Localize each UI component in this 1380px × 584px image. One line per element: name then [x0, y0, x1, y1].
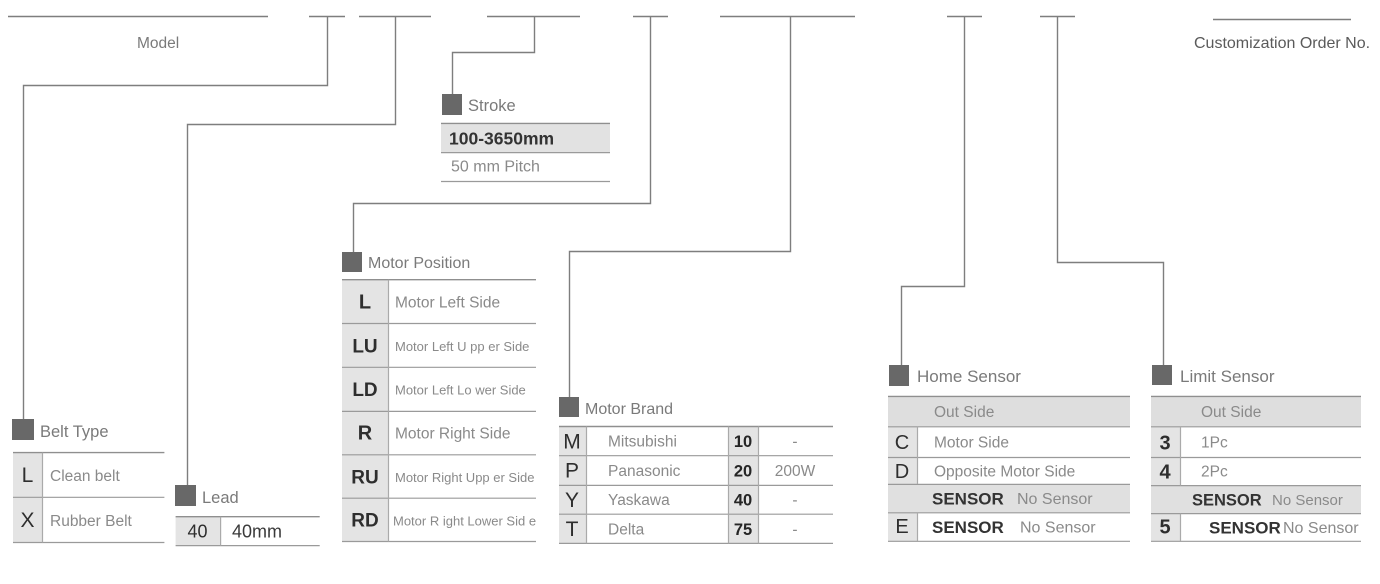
- svg-text:Motor Right Side: Motor Right Side: [395, 426, 510, 443]
- svg-text:D: D: [895, 461, 909, 483]
- svg-text:1Pc: 1Pc: [1201, 435, 1228, 452]
- svg-text:-: -: [792, 521, 797, 538]
- svg-text:50 mm Pitch: 50 mm Pitch: [451, 159, 540, 176]
- svg-text:No Sensor: No Sensor: [1272, 492, 1343, 509]
- svg-text:Rubber Belt: Rubber Belt: [50, 513, 133, 530]
- svg-text:Customization Order No.: Customization Order No.: [1194, 35, 1370, 52]
- svg-text:Model: Model: [137, 35, 179, 52]
- svg-text:40: 40: [187, 522, 207, 542]
- svg-text:Opposite Motor Side: Opposite Motor Side: [934, 464, 1075, 481]
- svg-text:Panasonic: Panasonic: [608, 463, 681, 480]
- svg-text:2Pc: 2Pc: [1201, 464, 1228, 481]
- svg-text:P: P: [565, 460, 579, 483]
- svg-text:RD: RD: [351, 511, 378, 532]
- svg-text:X: X: [20, 509, 34, 532]
- svg-text:Yaskawa: Yaskawa: [608, 492, 670, 509]
- svg-text:Lead: Lead: [202, 489, 239, 507]
- svg-text:40mm: 40mm: [232, 522, 282, 542]
- svg-text:No Sensor: No Sensor: [1020, 520, 1096, 537]
- svg-text:Motor Right Upp er Side: Motor Right Upp er Side: [395, 470, 534, 485]
- svg-text:R: R: [358, 423, 373, 445]
- svg-text:-: -: [792, 434, 797, 451]
- svg-text:4: 4: [1159, 462, 1171, 484]
- svg-text:No Sensor: No Sensor: [1017, 491, 1093, 508]
- svg-text:-: -: [792, 492, 797, 509]
- svg-text:10: 10: [734, 433, 752, 451]
- svg-text:Limit Sensor: Limit Sensor: [1180, 367, 1275, 386]
- svg-text:Motor Side: Motor Side: [934, 435, 1009, 452]
- svg-text:Clean belt: Clean belt: [50, 468, 120, 485]
- svg-text:75: 75: [734, 521, 752, 539]
- svg-text:3: 3: [1159, 433, 1170, 455]
- svg-text:E: E: [895, 516, 908, 538]
- svg-text:L: L: [22, 464, 34, 487]
- svg-text:Home Sensor: Home Sensor: [917, 367, 1021, 386]
- svg-text:Motor Left Side: Motor Left Side: [395, 295, 500, 312]
- svg-text:40: 40: [734, 492, 752, 510]
- svg-text:L: L: [359, 292, 371, 314]
- svg-text:SENSOR: SENSOR: [1209, 519, 1281, 538]
- svg-text:Out Side: Out Side: [934, 404, 994, 421]
- svg-text:T: T: [566, 518, 579, 541]
- svg-text:SENSOR: SENSOR: [932, 490, 1004, 509]
- svg-text:200W: 200W: [775, 463, 816, 480]
- svg-text:RU: RU: [351, 468, 378, 489]
- svg-text:C: C: [895, 432, 909, 454]
- svg-text:Motor R ight Lower Sid e: Motor R ight Lower Sid e: [393, 514, 536, 529]
- svg-text:Stroke: Stroke: [468, 97, 516, 115]
- svg-text:SENSOR: SENSOR: [1192, 492, 1262, 510]
- svg-text:Out Side: Out Side: [1201, 404, 1261, 421]
- svg-text:M: M: [563, 431, 581, 454]
- svg-text:20: 20: [734, 462, 752, 480]
- svg-text:Mitsubishi: Mitsubishi: [608, 434, 677, 451]
- svg-text:LD: LD: [352, 380, 377, 401]
- svg-text:SENSOR: SENSOR: [932, 518, 1004, 537]
- svg-text:Motor Brand: Motor Brand: [585, 401, 673, 418]
- svg-text:Y: Y: [565, 489, 579, 512]
- svg-text:Motor Left Lo wer Side: Motor Left Lo wer Side: [395, 383, 526, 398]
- svg-text:LU: LU: [352, 337, 377, 358]
- svg-text:Delta: Delta: [608, 521, 645, 538]
- svg-text:Motor Position: Motor Position: [368, 255, 470, 272]
- svg-text:No Sensor: No Sensor: [1283, 520, 1359, 537]
- svg-text:Belt Type: Belt Type: [40, 423, 109, 441]
- svg-text:Motor Left U pp er Side: Motor Left U pp er Side: [395, 339, 529, 354]
- svg-text:5: 5: [1159, 517, 1170, 539]
- svg-text:100-3650mm: 100-3650mm: [449, 129, 554, 149]
